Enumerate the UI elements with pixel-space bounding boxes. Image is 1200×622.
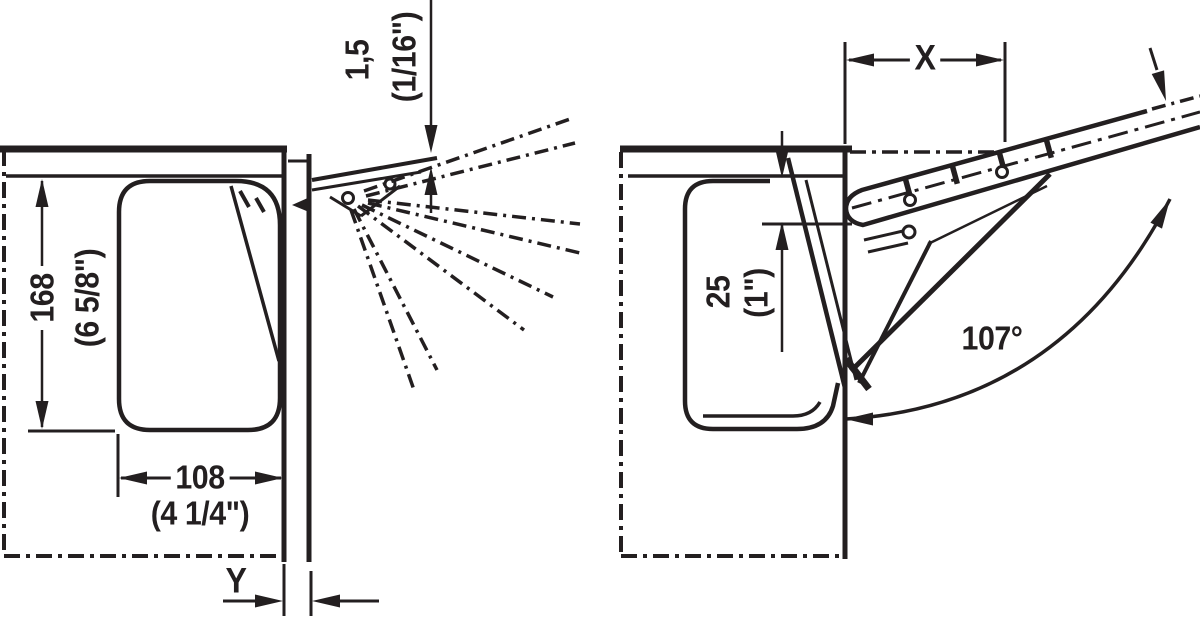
open-flap-centerline: [852, 112, 1200, 208]
phantom-flap-line: [351, 210, 414, 390]
arrowhead: [425, 125, 438, 153]
arm-pivot-screw: [903, 226, 915, 238]
arrowhead: [255, 472, 283, 485]
dim-front-mm-label: 25: [702, 276, 735, 309]
phantom-flap-line: [366, 143, 575, 196]
drawing-canvas: 1,5 (1/16") 168 (6 5/8") 108 (4 1/4") Y …: [0, 0, 1200, 622]
dim-x-label: X: [910, 41, 940, 76]
left-arm-upper: [312, 158, 437, 180]
dim-angle-label: 107°: [957, 322, 1027, 355]
right-view-cabinet: [620, 146, 998, 559]
arm-bracket: [864, 231, 908, 252]
arrowhead: [846, 54, 874, 67]
left-view-phantom-positions: [351, 118, 580, 390]
right-view-dimensions: [762, 42, 1170, 426]
left-mount-hook: [292, 197, 310, 212]
left-pocket-outline: [119, 181, 280, 430]
arrowhead: [845, 413, 873, 426]
dim-gap-y-label: Y: [225, 564, 246, 599]
arrowhead: [776, 150, 789, 178]
arrowhead: [976, 54, 1004, 67]
dim-depth-in-label: (4 1/4"): [151, 497, 249, 530]
lift-arm-link: [859, 241, 931, 383]
flap-screw: [905, 195, 916, 206]
left-flap-tilted-line: [231, 186, 279, 361]
arrowhead: [312, 595, 340, 608]
right-pocket-inner-bottom: [703, 402, 820, 416]
right-flap-tilted-line-2: [806, 180, 856, 380]
phantom-flap-line: [354, 209, 437, 370]
dim-depth-mm-label: 108: [171, 461, 229, 494]
arrowhead: [255, 595, 283, 608]
flap-screw: [997, 167, 1008, 178]
right-flap-tilted-line: [788, 158, 845, 388]
arrowhead: [1152, 70, 1166, 101]
left-pocket-hooks: [240, 191, 264, 212]
dim-height-in-label: (6 5/8"): [71, 249, 104, 347]
left-pivot-screw: [343, 193, 354, 204]
dim-offset-mm-label: 1,5: [341, 40, 374, 81]
phantom-flap-line: [364, 118, 573, 191]
dim-front-in-label: (1"): [740, 268, 773, 318]
arrowhead: [36, 401, 49, 429]
arrowhead: [776, 222, 789, 250]
dim-flap-leader: [1150, 48, 1157, 70]
arrowhead: [36, 179, 49, 207]
dim-offset-in-label: (1/16"): [388, 12, 421, 102]
dim-height-mm-label: 168: [26, 269, 59, 327]
arrowhead: [119, 472, 147, 485]
open-flap-phantom-tip: [1152, 96, 1200, 109]
phantom-flap-line: [368, 203, 580, 253]
arrowhead: [1150, 199, 1170, 229]
